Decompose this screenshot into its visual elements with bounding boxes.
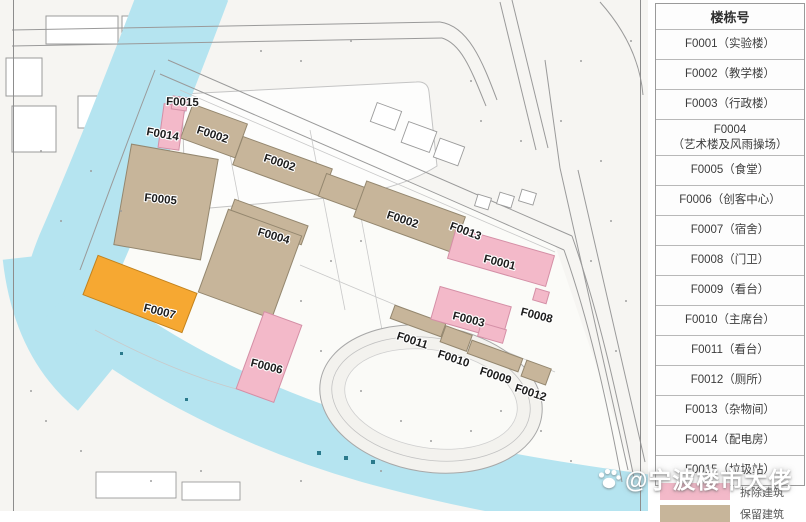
table-row-f0011: F0011（看台） [656,335,804,365]
table-row-f0003: F0003（行政楼） [656,89,804,119]
site-plan-map: F0015 F0014 F0002 F0002 F0005 F0002 F001… [0,0,648,511]
table-row-f0015: F0015（垃圾站） [656,455,804,485]
site-plan-screenshot: { "legend_table": { "header": "楼栋号", "ro… [0,0,806,511]
table-row-f0009: F0009（看台） [656,275,804,305]
table-row-f0002: F0002（教学楼） [656,59,804,89]
table-row-f0013: F0013（杂物间） [656,395,804,425]
table-row-f0008: F0008（门卫） [656,245,804,275]
key-demolished: 拆除建筑 [660,483,784,500]
building-number-table: 楼栋号 F0001（实验楼） F0002（教学楼） F0003（行政楼） F00… [655,3,805,486]
key-retained: 保留建筑 [660,505,784,522]
table-row-f0006: F0006（创客中心） [656,185,804,215]
site-plan-svg: F0015 F0014 F0002 F0002 F0005 F0002 F001… [0,0,648,511]
label-f0015: F0015 [166,96,200,109]
table-header: 楼栋号 [656,4,804,29]
table-row-f0005: F0005（食堂） [656,155,804,185]
key-demolished-label: 拆除建筑 [740,484,784,500]
retained-swatch [660,505,730,522]
table-row-f0010: F0010（主席台） [656,305,804,335]
table-row-f0014: F0014（配电房） [656,425,804,455]
table-row-f0007: F0007（宿舍） [656,215,804,245]
table-row-f0001: F0001（实验楼） [656,29,804,59]
table-row-f0004: F0004 （艺术楼及风雨操场） [656,119,804,155]
table-row-f0012: F0012（厕所） [656,365,804,395]
demolished-swatch [660,483,730,500]
key-retained-label: 保留建筑 [740,506,784,522]
